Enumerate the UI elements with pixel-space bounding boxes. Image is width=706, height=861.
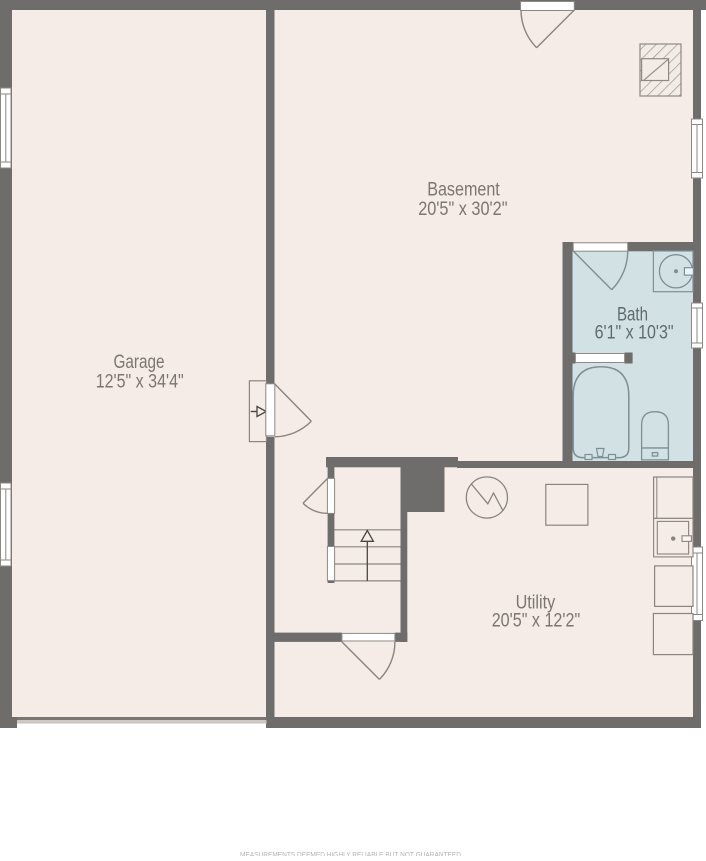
svg-text:12'5" x 34'4": 12'5" x 34'4" xyxy=(96,371,184,392)
svg-text:Garage: Garage xyxy=(114,352,165,373)
svg-text:MEASUREMENTS DEEMED HIGHLY REL: MEASUREMENTS DEEMED HIGHLY RELIABLE BUT … xyxy=(240,850,462,856)
svg-text:6'1" x 10'3": 6'1" x 10'3" xyxy=(595,323,674,344)
svg-text:20'5" x 30'2": 20'5" x 30'2" xyxy=(418,199,507,220)
svg-text:20'5" x 12'2": 20'5" x 12'2" xyxy=(492,611,581,632)
svg-text:Basement: Basement xyxy=(427,180,500,201)
